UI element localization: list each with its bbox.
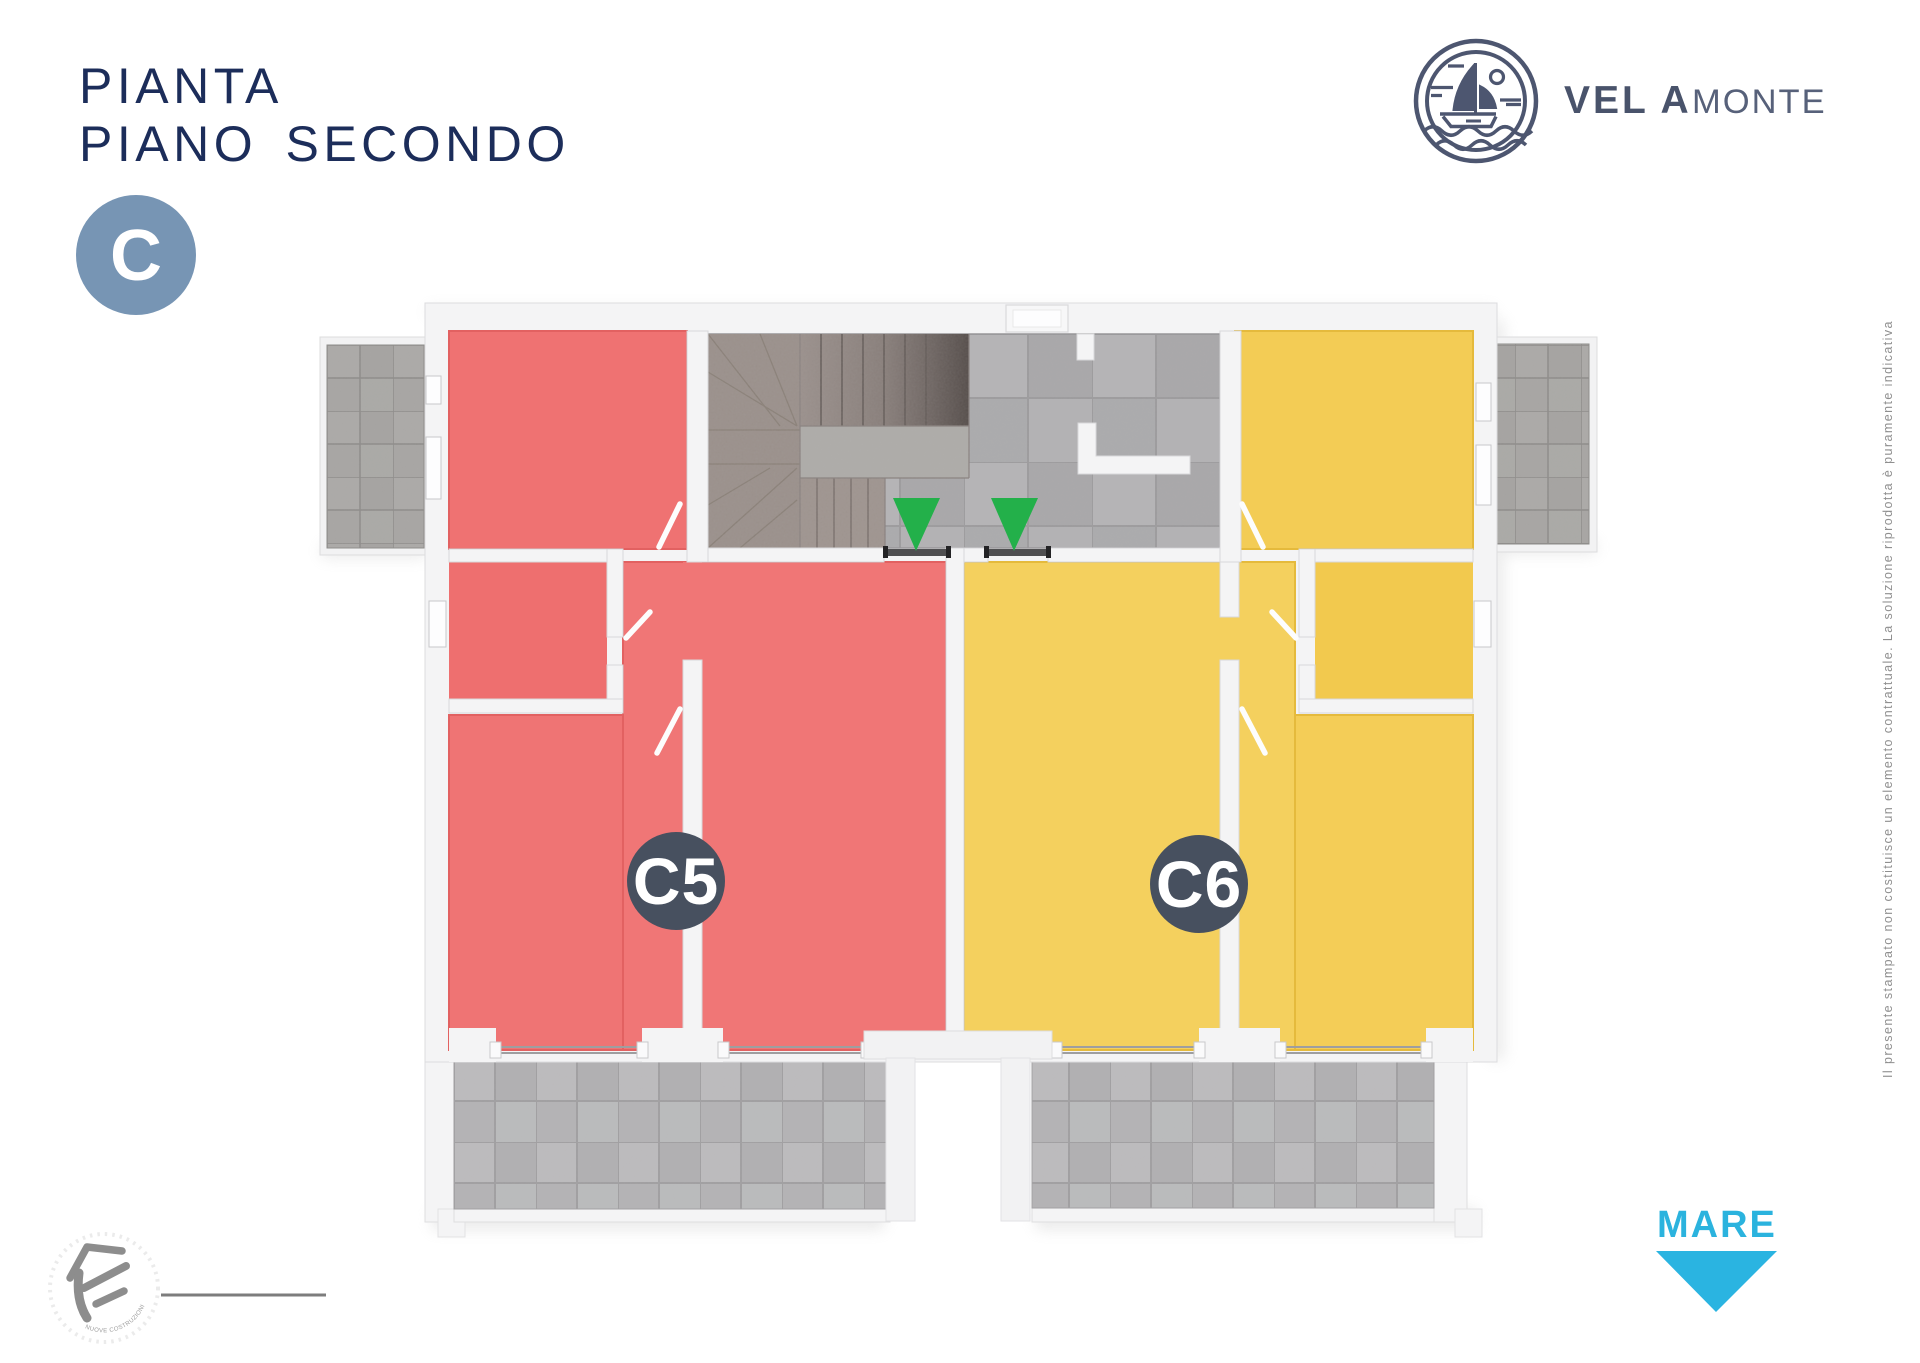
svg-text:MONTE: MONTE [1692,83,1827,121]
svg-text:MARE: MARE [1657,1204,1777,1246]
svg-text:C5: C5 [633,844,719,918]
svg-text:PIANTA: PIANTA [79,58,283,114]
svg-text:VEL A: VEL A [1564,79,1692,122]
svg-text:C6: C6 [1156,847,1242,921]
svg-text:C: C [110,216,162,296]
svg-text:PIANO SECONDO: PIANO SECONDO [79,116,570,172]
svg-text:NUOVE COSTRUZIONI: NUOVE COSTRUZIONI [84,1304,146,1335]
svg-text:Il presente stampato non costi: Il presente stampato non costituisce un … [1881,320,1895,1078]
